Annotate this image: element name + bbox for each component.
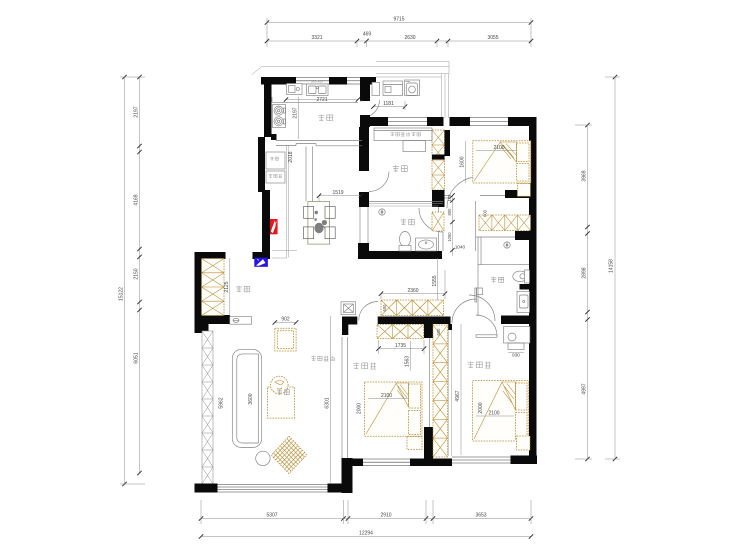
- svg-text:162: 162: [447, 194, 452, 202]
- svg-text:1563: 1563: [405, 356, 411, 367]
- svg-text:1050: 1050: [447, 232, 452, 242]
- svg-text:2360: 2360: [407, 288, 418, 294]
- svg-text:3969: 3969: [582, 170, 588, 181]
- svg-text:3321: 3321: [311, 35, 322, 41]
- svg-text:600x450: 600x450: [311, 80, 323, 84]
- svg-text:2100: 2100: [381, 393, 392, 399]
- svg-text:2197: 2197: [292, 107, 298, 118]
- svg-text:3653: 3653: [475, 513, 486, 519]
- svg-text:1519: 1519: [332, 190, 343, 196]
- svg-text:600: 600: [483, 209, 488, 217]
- svg-text:9715: 9715: [393, 17, 404, 23]
- svg-text:2000: 2000: [478, 402, 484, 413]
- svg-text:902: 902: [281, 317, 290, 323]
- svg-text:930: 930: [512, 353, 520, 358]
- svg-text:4169: 4169: [134, 194, 140, 205]
- svg-text:2910: 2910: [380, 513, 391, 519]
- svg-text:2150: 2150: [134, 268, 140, 279]
- svg-text:12294: 12294: [359, 531, 373, 537]
- svg-text:600: 600: [436, 328, 441, 336]
- svg-text:5307: 5307: [266, 513, 277, 519]
- svg-text:4967: 4967: [455, 390, 461, 401]
- svg-text:2100: 2100: [493, 145, 504, 151]
- svg-text:5962: 5962: [218, 397, 224, 408]
- svg-text:3600: 3600: [248, 393, 254, 404]
- svg-text:1735: 1735: [395, 343, 406, 349]
- svg-text:1181: 1181: [383, 101, 394, 107]
- svg-text:15122: 15122: [119, 287, 125, 301]
- svg-text:1040: 1040: [455, 245, 466, 250]
- svg-text:2125: 2125: [224, 281, 230, 292]
- svg-text:4997: 4997: [582, 383, 588, 394]
- svg-text:800: 800: [447, 208, 452, 216]
- svg-text:6301: 6301: [325, 397, 331, 408]
- svg-text:2100: 2100: [488, 411, 499, 417]
- svg-text:1555: 1555: [432, 275, 438, 286]
- svg-text:2630: 2630: [404, 35, 415, 41]
- svg-text:2197: 2197: [134, 106, 140, 117]
- svg-text:3055: 3055: [487, 35, 498, 41]
- svg-text:6051: 6051: [134, 352, 140, 363]
- svg-text:600: 600: [382, 304, 387, 312]
- svg-text:469: 469: [363, 32, 372, 38]
- svg-text:2898: 2898: [582, 267, 588, 278]
- svg-text:2721: 2721: [316, 97, 327, 103]
- svg-text:2018: 2018: [288, 151, 294, 162]
- svg-text:2000: 2000: [357, 403, 363, 414]
- svg-text:14158: 14158: [609, 259, 615, 273]
- svg-text:1600: 1600: [460, 156, 466, 167]
